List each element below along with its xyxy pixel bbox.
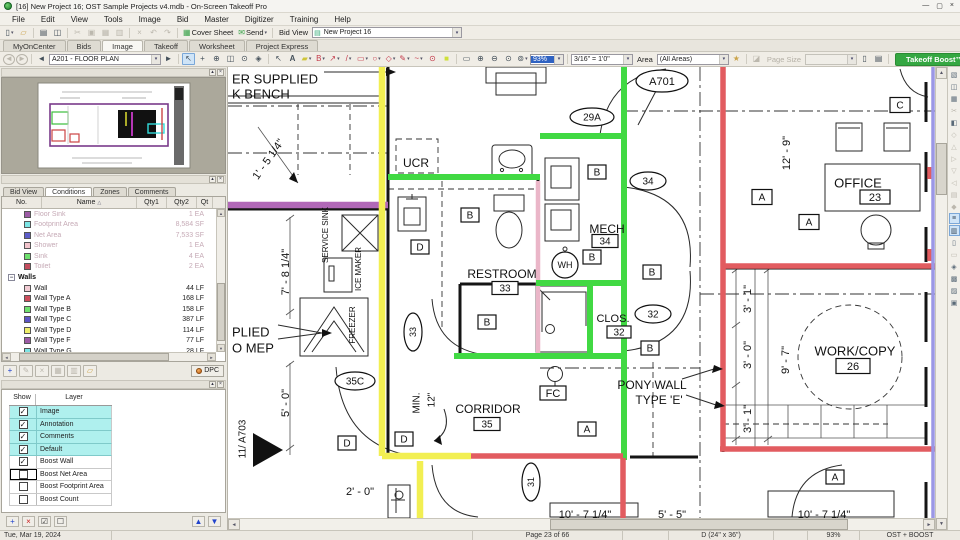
curve-annotation-tool-icon: ~ (414, 54, 419, 64)
paste-button-icon: ▦ (102, 28, 110, 38)
cut-button-icon: ✂ (74, 28, 81, 38)
layer-name: Comments (37, 433, 74, 440)
svg-text:OFFICE: OFFICE (834, 176, 882, 191)
toolbar-separator (67, 28, 68, 38)
chevron-down-icon[interactable]: ▾ (151, 55, 160, 64)
svg-text:PLIED: PLIED (232, 325, 270, 340)
tab-bid-view[interactable]: Bid View (3, 187, 44, 196)
condition-name: Footprint Area (31, 221, 174, 228)
svg-text:A: A (759, 193, 766, 204)
layer-checkbox[interactable]: ✓ (19, 432, 28, 441)
toolbar-separator (268, 54, 269, 64)
floor-plan-canvas[interactable]: ER SUPPLIEDK BENCH1' - 5 1/4"A701C12' - … (228, 67, 935, 518)
drawing-label-34: 34 (592, 235, 618, 248)
svg-text:31: 31 (526, 477, 536, 487)
condition-properties-button: ▦ (51, 365, 65, 377)
project-selector[interactable]: ▤New Project 16▾ (312, 27, 462, 38)
column-header-label: No. (16, 199, 27, 206)
svg-text:A: A (832, 473, 839, 484)
polygon-annotation-tool-icon: ◇ (386, 54, 392, 64)
chevron-down-icon[interactable]: ▾ (554, 55, 563, 64)
layer-name: Default (37, 446, 62, 453)
zoom-previous-button-icon: ⊙ (505, 54, 512, 64)
layer-row[interactable]: ✓Image (9, 406, 112, 419)
condition-color-swatch (24, 316, 31, 323)
collapse-panel-icon[interactable]: ▴ (209, 176, 216, 183)
send-button[interactable]: ✉Send▾ (236, 27, 269, 39)
conditions-toolbar: +✎×▦▥▱ DPC (0, 362, 227, 379)
redo-button-icon: ↷ (164, 28, 171, 38)
collapse-group-icon[interactable]: − (8, 274, 15, 281)
tab-worksheet[interactable]: Worksheet (189, 40, 245, 51)
curve-annotation-tool[interactable]: ~▾ (412, 53, 425, 65)
svg-text:WORK/COPY: WORK/COPY (815, 344, 896, 359)
condition-color-swatch (24, 211, 31, 218)
tab-bids[interactable]: Bids (67, 40, 102, 51)
drawing-label-5-0: 5' - 0" (280, 389, 292, 417)
polygon-annotation-tool[interactable]: ◇▾ (384, 53, 397, 65)
maximize-button[interactable]: ▢ (936, 2, 943, 10)
condition-row[interactable]: Wall Type B158 LF (2, 304, 216, 315)
menu-digitizer[interactable]: Digitizer (237, 15, 282, 24)
drawing-label-k-bench: K BENCH (232, 87, 290, 102)
layer-visibility-cell[interactable]: ✓ (10, 406, 37, 418)
image-legend-tool[interactable]: B▾ (314, 53, 327, 65)
chevron-down-icon: ▾ (309, 56, 312, 62)
zoom-previous-button[interactable]: ⊙ (502, 53, 515, 65)
tab-myoncenter[interactable]: MyOnCenter (3, 40, 66, 51)
pan-tool[interactable]: ◈ (252, 53, 265, 65)
drawing-label-12: 12" (427, 392, 438, 407)
zoom-page-tool-icon: ◫ (227, 54, 235, 64)
drawing-horizontal-scrollbar[interactable]: ◄ ► (228, 518, 935, 530)
status-spacer (774, 531, 808, 540)
condition-row[interactable]: Shower1 EA (2, 241, 216, 252)
cut-image-tool[interactable]: ✂ (949, 105, 960, 116)
area-selector[interactable]: (All Areas)▾ (657, 54, 729, 65)
condition-name: Wall (31, 285, 174, 292)
scroll-down-icon[interactable]: ▼ (936, 518, 947, 530)
conditions-panel-header[interactable]: ▴ × (1, 175, 226, 184)
chevron-down-icon[interactable]: ▾ (847, 55, 856, 64)
fill-color-tool-icon: ■ (444, 54, 449, 64)
drawing-label-plied: PLIED (232, 325, 270, 340)
chevron-down-icon: ▾ (366, 56, 369, 62)
compare-pages-tool[interactable]: ◫ (949, 81, 960, 92)
menu-view[interactable]: View (63, 15, 96, 24)
show-column-header: Show (9, 394, 36, 405)
zoom-level-input-value: 93% (531, 56, 554, 63)
scroll-right-icon[interactable]: ► (207, 353, 216, 361)
scale-selector[interactable]: 3/16" = 1'0"▾ (571, 54, 633, 65)
pan-tool-icon: ◈ (255, 54, 261, 64)
condition-row[interactable]: Wall Type F77 LF (2, 336, 216, 347)
minimize-button[interactable]: — (922, 2, 929, 10)
layer-checkbox[interactable]: ✓ (19, 420, 28, 429)
next-page-button-icon: ► (165, 54, 173, 64)
organize-pages-tool[interactable]: ◈ (949, 261, 960, 272)
zoom-select-tool[interactable]: ⊕ (210, 53, 223, 65)
condition-color-swatch (24, 253, 31, 260)
column-header-qty2[interactable]: Qty2 (167, 197, 197, 208)
freehand-annotation-tool[interactable]: ✎▾ (398, 53, 411, 65)
close-panel-icon[interactable]: × (217, 69, 224, 76)
condition-qty: 4 EA (174, 253, 216, 260)
layer-visibility-cell[interactable]: ✓ (10, 419, 37, 431)
condition-color-swatch (24, 295, 31, 302)
cover-sheet-button-label: Cover Sheet (192, 28, 234, 37)
color-adjust-tool[interactable]: ◆ (949, 201, 960, 212)
stamp-annotation-tool[interactable]: ⊙ (426, 53, 439, 65)
print-button[interactable]: ▤ (37, 27, 50, 39)
scrollbar-thumb[interactable] (550, 519, 848, 530)
drawing-viewport[interactable]: ER SUPPLIEDK BENCH1' - 5 1/4"A701C12' - … (228, 67, 935, 530)
overlay-pages-tool[interactable]: ▧ (949, 69, 960, 80)
chevron-down-icon: ▾ (337, 56, 340, 62)
select-tool-icon: ↖ (185, 54, 192, 64)
takeoff-boost-button[interactable]: Takeoff Boost™ (895, 53, 960, 66)
zoom-extents-button[interactable]: ⊚▾ (516, 53, 529, 65)
tab-conditions[interactable]: Conditions (45, 187, 92, 196)
new-document-button[interactable]: ▯▾ (3, 27, 16, 39)
column-header-no[interactable]: No. (2, 197, 42, 208)
page-size-selector[interactable]: ▾ (805, 54, 857, 65)
zoom-in-button[interactable]: ⊕ (474, 53, 487, 65)
svg-text:5' - 0": 5' - 0" (280, 389, 292, 417)
column-header-label: Name (77, 199, 96, 206)
magic-wand-tool[interactable]: ★ (730, 53, 743, 65)
condition-list-panel[interactable]: ≡ (949, 213, 960, 224)
drawing-label-o-mep: O MEP (232, 341, 274, 356)
close-button[interactable]: × (950, 2, 954, 10)
svg-text:B: B (484, 318, 491, 329)
ellipse-annotation-tool[interactable]: ○▾ (370, 53, 383, 65)
notes-panel[interactable]: ▯ (949, 237, 960, 248)
condition-qty: 387 LF (174, 316, 216, 323)
svg-text:D: D (343, 439, 350, 450)
collapse-panel-icon[interactable]: ▴ (209, 69, 216, 76)
new-page-button[interactable]: ▯ (858, 53, 871, 65)
redo-button: ↷ (161, 27, 174, 39)
chevron-down-icon[interactable]: ▾ (452, 28, 461, 37)
column-header-qty1[interactable]: Qty1 (137, 197, 167, 208)
layer-checkbox[interactable] (19, 470, 28, 479)
eraser-tool: ◪ (750, 53, 763, 65)
close-panel-icon[interactable]: × (217, 381, 224, 388)
takeoff-tool[interactable]: + (196, 53, 209, 65)
tab-image[interactable]: Image (102, 40, 143, 51)
svg-text:23: 23 (869, 192, 881, 204)
print-page-button[interactable]: ▤ (872, 53, 885, 65)
toolbar-separator (567, 54, 568, 64)
column-header-label: Qty2 (174, 199, 189, 206)
zoom-level-input[interactable]: 93%▾ (530, 54, 564, 65)
layer-row[interactable]: Boost Count (9, 494, 112, 507)
delete-layer-button[interactable]: × (22, 516, 35, 527)
menu-image[interactable]: Image (131, 15, 169, 24)
tab-comments[interactable]: Comments (128, 187, 176, 196)
scroll-left-icon[interactable]: ◄ (228, 519, 240, 530)
scroll-left-icon[interactable]: ◄ (2, 353, 11, 361)
column-header-qt[interactable]: Qt (197, 197, 213, 208)
menu-tools[interactable]: Tools (96, 15, 131, 24)
add-layer-button[interactable]: + (6, 516, 19, 527)
chevron-down-icon: ▾ (265, 30, 268, 36)
rotate-image-tool[interactable]: ◇ (949, 129, 960, 140)
nav-back-button-icon: ◄ (5, 54, 13, 64)
drawing-label-10-7-1-4: 10' - 7 1/4" (798, 509, 851, 518)
cover-sheet-button[interactable]: ▦Cover Sheet (181, 27, 235, 39)
zoom-page-tool[interactable]: ◫ (224, 53, 237, 65)
next-page-button[interactable]: ► (162, 53, 175, 65)
drawing-label-restroom: RESTROOM (467, 267, 536, 281)
layer-row[interactable]: ✓Annotation (9, 419, 112, 432)
thumbnail-plan (2, 78, 228, 173)
condition-row[interactable]: Wall Type C387 LF (2, 315, 216, 326)
area-selector-value: (All Areas) (658, 56, 719, 63)
condition-style-button: ▥ (67, 365, 81, 377)
scale-selector-value: 3/16" = 1'0" (572, 56, 623, 63)
drawing-label-a: A (799, 215, 819, 230)
freehand-annotation-tool-icon: ✎ (399, 54, 406, 64)
tab-zones[interactable]: Zones (93, 187, 126, 196)
project-selector-icon: ▤ (313, 29, 322, 37)
crop-image-tool[interactable]: ◧ (949, 117, 960, 128)
drawing-label-work-copy: WORK/COPY (815, 344, 896, 359)
drawing-label-2-0: 2' - 0" (346, 486, 374, 498)
chevron-down-icon[interactable]: ▾ (623, 55, 632, 64)
menu-training[interactable]: Training (282, 15, 327, 24)
cascade-windows-tool[interactable]: ▨ (949, 285, 960, 296)
drawing-label-d: D (338, 436, 356, 450)
layer-row[interactable]: ✓Boost Wall (9, 456, 112, 469)
project-selector-value: New Project 16 (322, 29, 452, 36)
layer-row[interactable]: Boost Footprint Area (9, 481, 112, 494)
grid-view-tool[interactable]: ▦ (949, 93, 960, 104)
sort-ascending-icon: △ (97, 200, 101, 206)
svg-text:B: B (589, 253, 596, 264)
zoom-window-button[interactable]: ▭ (460, 53, 473, 65)
open-project-button[interactable]: ▱ (17, 27, 30, 39)
drawing-label-service-sink: SERVICE SINK (321, 206, 330, 263)
zoom-in-button-icon: ⊕ (477, 54, 484, 64)
close-panel-icon[interactable]: × (217, 176, 224, 183)
eraser-tool-icon: ◪ (753, 54, 761, 64)
print-preview-button[interactable]: ◫ (51, 27, 64, 39)
takeoff-toolbar: ◄►◄A201 - FLOOR PLAN▾►↖+⊕◫⊙◈↖A▰▾B▾↗▾/▾▭▾… (0, 52, 960, 67)
menu-file[interactable]: File (4, 15, 33, 24)
drawing-label-12-9: 12' - 9" (781, 136, 793, 170)
copy-button: ▣ (85, 27, 98, 39)
drawing-label-11-a703: 11/ A703 (238, 419, 249, 458)
svg-text:35: 35 (481, 420, 493, 431)
page-selector[interactable]: A201 - FLOOR PLAN▾ (49, 54, 161, 65)
layer-checkbox[interactable]: ✓ (19, 407, 28, 416)
drawing-label-31: 31 (522, 463, 540, 501)
drawing-label-3-1: 3' - 1" (742, 405, 754, 433)
drawing-label-b: B (588, 165, 606, 179)
toolbar-separator (272, 28, 273, 38)
menu-master[interactable]: Master (196, 15, 236, 24)
chevron-down-icon[interactable]: ▾ (719, 55, 728, 64)
scrollbar-thumb[interactable] (217, 283, 225, 340)
condition-row[interactable]: Wall Type D114 LF (2, 325, 216, 336)
summary-panel[interactable]: ▭ (949, 249, 960, 260)
layer-order-buttons: ▲▼ (192, 516, 221, 527)
flip-vertical-tool[interactable]: △ (949, 141, 960, 152)
layers-panel-header[interactable]: ▴ × (1, 380, 226, 389)
delete-condition-button: × (35, 365, 49, 377)
svg-text:12": 12" (427, 392, 438, 407)
layer-visibility-cell[interactable] (10, 481, 37, 493)
prev-page-button[interactable]: ◄ (35, 53, 48, 65)
tab-project-express[interactable]: Project Express (246, 40, 319, 51)
copy-button-icon: ▣ (88, 28, 96, 38)
condition-name: Wall Type C (31, 316, 174, 323)
scrollbar-thumb[interactable] (936, 143, 947, 195)
drawing-label-min: MIN. (412, 392, 423, 413)
condition-group-row[interactable]: −Walls (2, 272, 216, 283)
drawing-label-35: 35 (474, 418, 500, 431)
layer-checkbox[interactable] (19, 482, 28, 491)
collapse-panel-icon[interactable]: ▴ (209, 381, 216, 388)
condition-name: Wall Type F (31, 337, 174, 344)
page-selector-value: A201 - FLOOR PLAN (50, 56, 151, 63)
bid-view-label: Bid View (276, 28, 311, 37)
annotation-select-tool[interactable]: ↖ (272, 53, 285, 65)
layers-panel-tool[interactable]: ▣ (949, 297, 960, 308)
zoom-out-button[interactable]: ⊖ (488, 53, 501, 65)
status-bar: Tue, Mar 19, 2024 Page 23 of 66 D (24" x… (0, 530, 960, 540)
nav-back-button: ◄ (3, 54, 15, 65)
layer-row[interactable]: Boost Net Area (9, 469, 112, 482)
layer-row[interactable]: ✓Comments (9, 431, 112, 444)
tab-takeoff[interactable]: Takeoff (144, 40, 188, 51)
flip-horizontal-tool[interactable]: ▷ (949, 153, 960, 164)
condition-qty: 44 LF (174, 285, 216, 292)
layer-name: Boost Footprint Area (37, 483, 104, 490)
condition-row[interactable]: Wall Type A168 LF (2, 294, 216, 305)
fill-color-tool[interactable]: ■ (440, 53, 453, 65)
drawing-label-23: 23 (860, 190, 890, 204)
svg-text:3' - 1": 3' - 1" (742, 405, 754, 433)
drawing-label-32: 32 (635, 305, 671, 323)
rectangle-annotation-tool[interactable]: ▭▾ (356, 53, 369, 65)
conditions-horizontal-scrollbar[interactable]: ◄ ► (2, 352, 216, 361)
layer-row[interactable]: ✓Default (9, 444, 112, 457)
move-layer-up-button[interactable]: ▲ (192, 516, 205, 527)
tile-windows-tool[interactable]: ▩ (949, 273, 960, 284)
layer-edit-buttons: +×☑☐ (6, 516, 67, 527)
condition-row[interactable]: Sink4 EA (2, 251, 216, 262)
svg-text:B: B (467, 211, 474, 222)
toolbar-separator (33, 28, 34, 38)
scroll-down-icon[interactable]: ▼ (217, 344, 225, 352)
scroll-right-icon[interactable]: ► (923, 519, 935, 530)
line-annotation-tool[interactable]: /▾ (342, 53, 355, 65)
drawing-label-b: B (461, 208, 479, 222)
condition-qty: 77 LF (174, 337, 216, 344)
rectangle-annotation-tool-icon: ▭ (357, 54, 365, 64)
move-layer-down-button[interactable]: ▼ (208, 516, 221, 527)
toolbar-separator (178, 54, 179, 64)
text-annotation-tool[interactable]: A (286, 53, 299, 65)
menu-bid[interactable]: Bid (169, 15, 197, 24)
standard-toolbar: ▯▾▱▤◫✂▣▦▥×↶↷▦Cover Sheet✉Send▾Bid View▤N… (0, 26, 960, 40)
zoom-area-tool[interactable]: ⊙ (238, 53, 251, 65)
svg-text:CLOS.: CLOS. (596, 313, 629, 325)
condition-row[interactable]: Net Area7,533 SF (2, 230, 216, 241)
conditions-vertical-scrollbar[interactable]: ▲ ▼ (216, 209, 225, 352)
add-condition-button[interactable]: + (3, 365, 17, 377)
layer-visibility-cell[interactable] (10, 494, 37, 506)
image-properties-tool[interactable]: ▤ (949, 189, 960, 200)
conditions-grid: No.Name△Qty1Qty2Qt Floor Sink1 EAFootpri… (1, 196, 226, 362)
column-header-label: Qty1 (144, 199, 159, 206)
drawing-label-33: 33 (492, 282, 518, 295)
layer-visibility-cell[interactable]: ✓ (10, 431, 37, 443)
menu-help[interactable]: Help (326, 15, 358, 24)
condition-row[interactable]: Wall44 LF (2, 283, 216, 294)
dpc-button[interactable]: DPC (191, 365, 224, 377)
mirror-image-tool[interactable]: ▽ (949, 165, 960, 176)
condition-color-swatch (24, 242, 31, 249)
sheet-thumbnail[interactable] (1, 77, 226, 174)
chevron-down-icon: ▾ (393, 56, 396, 62)
layer-checkbox[interactable] (19, 495, 28, 504)
drawing-label-type-e: TYPE 'E' (635, 393, 682, 407)
svg-text:A: A (584, 425, 591, 436)
arrow-annotation-tool[interactable]: ↗▾ (328, 53, 341, 65)
column-header-label: Qt (201, 199, 208, 206)
svg-text:WH: WH (558, 260, 573, 270)
drawing-label-10-7-1-4: 10' - 7 1/4" (559, 509, 612, 518)
thumbnail-panel-header[interactable]: ▴ × (1, 68, 226, 77)
layer-checkbox[interactable]: ✓ (19, 457, 28, 466)
svg-text:3' - 1": 3' - 1" (742, 285, 754, 313)
highlighter-tool[interactable]: ▰▾ (300, 53, 313, 65)
menu-edit[interactable]: Edit (33, 15, 63, 24)
scrollbar-thumb[interactable] (19, 353, 169, 361)
highlighter-tool-icon: ▰ (302, 54, 308, 64)
layer-visibility-cell[interactable] (10, 469, 37, 481)
chevron-down-icon: ▾ (420, 56, 423, 62)
layer-visibility-cell[interactable]: ✓ (10, 456, 37, 468)
condition-row[interactable]: Toilet2 EA (2, 262, 216, 273)
print-page-button-icon: ▤ (875, 54, 883, 64)
condition-row[interactable]: Footprint Area8,584 SF (2, 220, 216, 231)
scroll-up-icon[interactable]: ▲ (217, 209, 225, 217)
condition-folder-button[interactable]: ▱ (83, 365, 97, 377)
drawing-label-26: 26 (836, 359, 870, 374)
image-list-panel[interactable]: ▥ (949, 225, 960, 236)
condition-row[interactable]: Floor Sink1 EA (2, 209, 216, 220)
scroll-up-icon[interactable]: ▲ (936, 67, 947, 79)
drawing-vertical-scrollbar[interactable]: ▲ ▼ (935, 67, 947, 530)
layer-visibility-cell[interactable]: ✓ (10, 444, 37, 456)
magic-wand-tool-icon: ★ (733, 54, 740, 64)
condition-qty: 1 EA (174, 242, 216, 249)
layer-column-header: Layer (36, 394, 112, 405)
skew-image-tool[interactable]: ◁ (949, 177, 960, 188)
drawing-label-a701: A701 (636, 70, 688, 92)
condition-name: Sink (31, 253, 174, 260)
column-header-name[interactable]: Name△ (42, 197, 137, 208)
layer-checkbox[interactable]: ✓ (19, 445, 28, 454)
select-tool[interactable]: ↖ (182, 53, 195, 65)
uncheck-all-layers-button[interactable]: ☐ (54, 516, 67, 527)
check-all-layers-button[interactable]: ☑ (38, 516, 51, 527)
